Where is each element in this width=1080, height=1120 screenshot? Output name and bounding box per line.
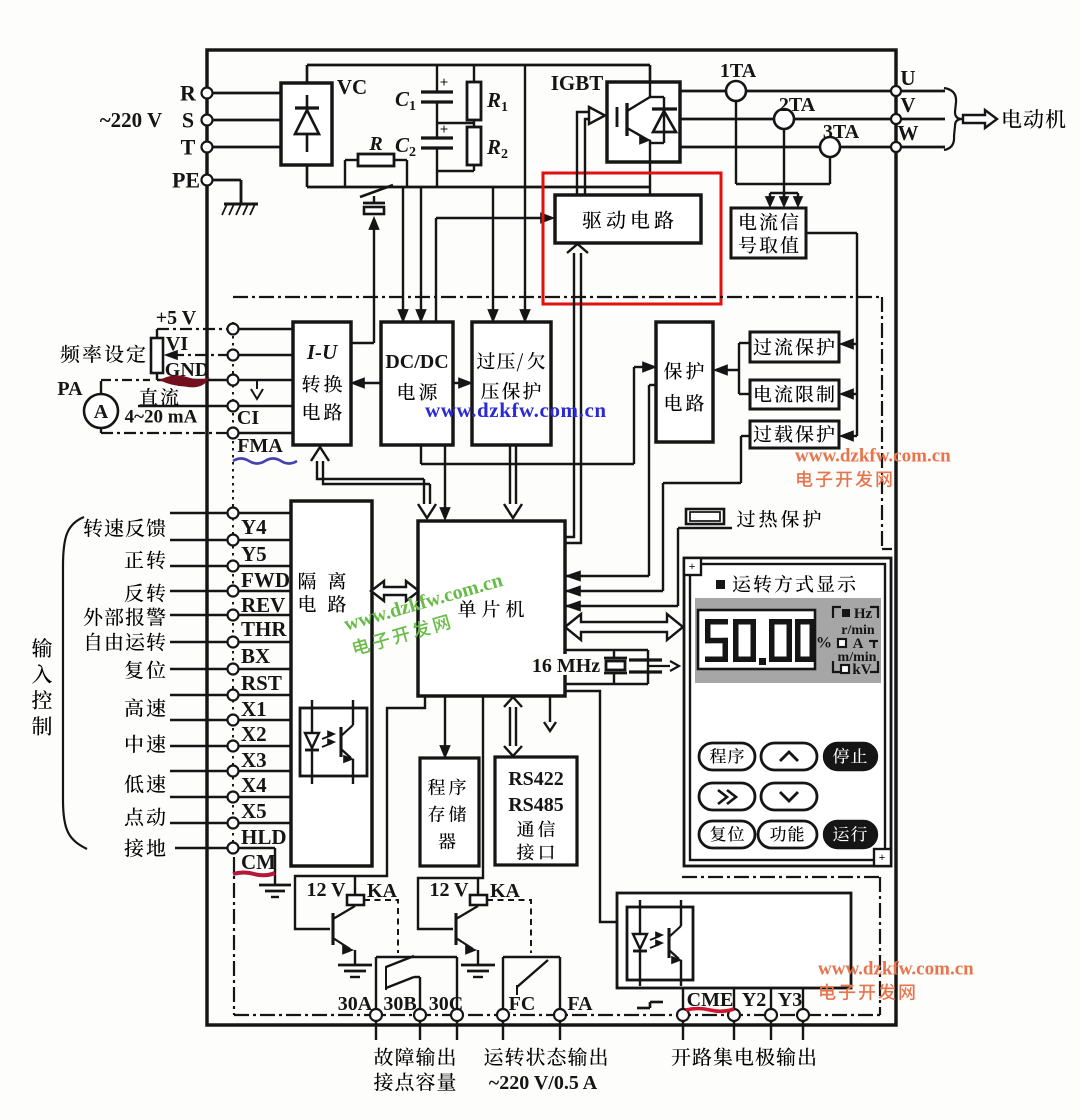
svg-text:REV: REV [241,593,285,617]
svg-text:I-U: I-U [306,340,339,364]
svg-text:FA: FA [567,993,593,1015]
svg-text:30C: 30C [429,993,463,1015]
svg-text:~220 V: ~220 V [100,108,162,132]
svg-text:+: + [879,850,886,864]
svg-text:PA: PA [57,378,83,400]
svg-text:+: + [440,75,449,91]
svg-text:Y5: Y5 [241,542,267,566]
svg-text:THR: THR [241,617,287,641]
svg-text:S: S [182,108,194,133]
svg-text:RS422: RS422 [508,768,564,790]
svg-text:X1: X1 [241,697,267,721]
svg-text:KA: KA [490,880,521,902]
svg-text:16 MHz: 16 MHz [532,655,600,677]
svg-text:R: R [368,133,382,155]
svg-text:Hz: Hz [854,606,873,622]
svg-text:www.dzkfw.com.cn: www.dzkfw.com.cn [795,446,951,467]
svg-text:HLD: HLD [241,825,287,849]
svg-text:DC/DC: DC/DC [385,351,448,373]
svg-text:X4: X4 [241,773,267,797]
svg-text:kV: kV [852,662,871,678]
svg-text:KA: KA [367,880,398,902]
svg-text:www.dzkfw.com.cn: www.dzkfw.com.cn [818,959,974,980]
svg-text:RST: RST [241,671,282,695]
svg-text:PE: PE [172,168,200,193]
svg-text:CM: CM [241,850,276,874]
svg-text:12 V: 12 V [429,879,469,901]
svg-text:30B: 30B [383,993,416,1015]
svg-text:1TA: 1TA [720,60,757,82]
svg-text:BX: BX [241,644,270,668]
svg-text:Y4: Y4 [241,515,267,539]
svg-text:X2: X2 [241,722,267,746]
svg-text:FWD: FWD [241,568,290,592]
svg-text:A: A [94,401,109,423]
svg-text:Y3: Y3 [778,989,802,1011]
svg-text:U: U [900,66,915,90]
svg-text:~220 V/0.5 A: ~220 V/0.5 A [489,1072,598,1094]
svg-text:FC: FC [509,993,536,1015]
svg-text:+: + [440,122,449,138]
svg-text:3TA: 3TA [823,121,860,143]
svg-text:IGBT: IGBT [551,71,604,95]
svg-text:12 V: 12 V [306,879,346,901]
svg-text:%: % [816,634,832,651]
svg-text:CI: CI [237,407,259,429]
svg-text:www.dzkfw.com.cn: www.dzkfw.com.cn [425,398,607,422]
svg-text:RS485: RS485 [508,794,564,816]
svg-text:2TA: 2TA [779,94,816,116]
svg-text:30A: 30A [338,993,373,1015]
svg-text:+: + [689,559,696,573]
svg-text:FMA: FMA [237,435,283,457]
svg-text:X5: X5 [241,799,267,823]
svg-text:X3: X3 [241,748,267,772]
svg-text:T: T [181,135,196,160]
svg-text:4~20 mA: 4~20 mA [125,407,198,428]
svg-text:W: W [898,121,919,145]
svg-text:+5 V: +5 V [156,307,197,329]
svg-text:VI: VI [166,333,188,355]
svg-text:R: R [180,81,197,106]
svg-text:V: V [900,93,915,117]
svg-text:VC: VC [337,75,367,99]
svg-text:Y2: Y2 [742,989,766,1011]
